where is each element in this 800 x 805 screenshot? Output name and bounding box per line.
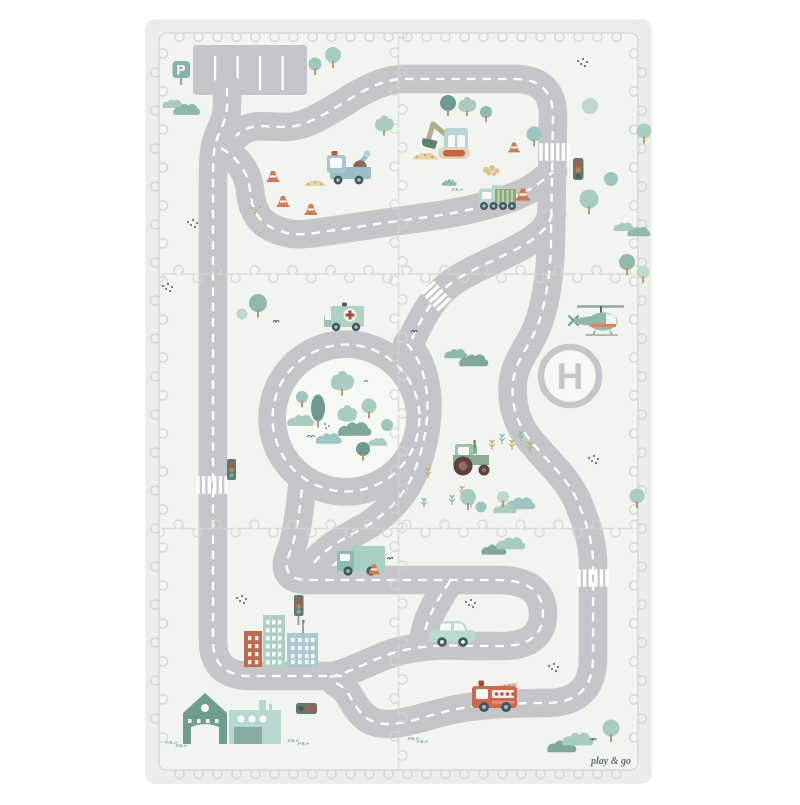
svg-text:play & go: play & go bbox=[590, 756, 631, 767]
svg-text:H: H bbox=[557, 356, 584, 397]
svg-text:P: P bbox=[176, 63, 185, 78]
